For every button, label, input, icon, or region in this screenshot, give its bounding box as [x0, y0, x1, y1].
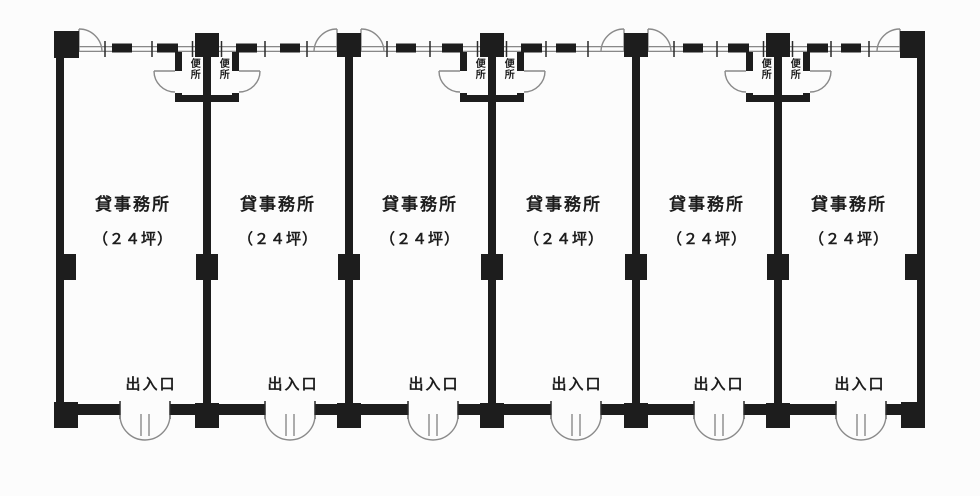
door-swing-arc-icon: [725, 71, 746, 92]
unit-1-top-door: [79, 29, 102, 52]
door-leaf: [286, 414, 294, 436]
unit-name: 貸事務所: [667, 190, 747, 215]
pillar: [196, 254, 218, 280]
divider-wall: [203, 52, 211, 404]
toilet-door-opening: [803, 71, 810, 93]
pillar: [56, 254, 76, 280]
floorplan-canvas: 貸事務所 （２４坪） 貸事務所 （２４坪） 貸事務所 （２４坪） 貸事務所 （２…: [0, 0, 980, 496]
pillar: [480, 33, 504, 57]
door-swing-arc-icon: [79, 29, 102, 52]
divider-wall: [774, 52, 782, 404]
toilet-door-opening: [746, 71, 753, 93]
entrance-label-4: 出入口: [551, 373, 602, 394]
unit-area: （２４坪）: [809, 228, 889, 249]
entrance-label-2: 出入口: [267, 373, 318, 394]
unit-4-top-door: [601, 29, 624, 52]
door-leaf: [429, 414, 437, 436]
door-swing-arc-icon: [361, 29, 384, 52]
unit-2-top-door: [314, 29, 337, 52]
pillar: [766, 33, 790, 57]
door-swing-arc-icon: [648, 29, 671, 52]
unit-3-top-door: [361, 29, 384, 52]
pillar: [54, 402, 78, 428]
unit-5-top-door: [648, 29, 671, 52]
divider-wall: [345, 52, 353, 404]
unit-area: （２４坪）: [93, 228, 173, 249]
door-leaf: [572, 414, 580, 436]
pillar: [195, 33, 219, 57]
pillar: [338, 254, 360, 280]
unit-6-top-door: [877, 29, 900, 52]
unit-label-5: 貸事務所 （２４坪）: [667, 190, 747, 249]
pillar: [337, 33, 361, 57]
toilet-label: 便所: [502, 58, 513, 80]
door-swing-arc-icon: [439, 71, 460, 92]
door-swing-arc-icon: [154, 71, 175, 92]
toilet-label: 便所: [788, 58, 799, 80]
pillar: [54, 31, 79, 58]
unit-area: （２４坪）: [524, 228, 604, 249]
door-swing-arc-icon: [314, 29, 337, 52]
pillar: [625, 254, 647, 280]
pillar: [900, 31, 925, 58]
pillar: [766, 403, 790, 428]
pillar: [337, 403, 361, 428]
entrance-label-5: 出入口: [693, 373, 744, 394]
unit-name: 貸事務所: [380, 190, 460, 215]
unit-label-3: 貸事務所 （２４坪）: [380, 190, 460, 249]
pillar: [901, 402, 925, 428]
pillar: [905, 254, 925, 280]
unit-name: 貸事務所: [524, 190, 604, 215]
toilet-door-opening: [232, 71, 239, 93]
unit-name: 貸事務所: [238, 190, 318, 215]
unit-name: 貸事務所: [809, 190, 889, 215]
unit-label-4: 貸事務所 （２４坪）: [524, 190, 604, 249]
entrance-label-1: 出入口: [125, 373, 176, 394]
unit-label-1: 貸事務所 （２４坪）: [93, 190, 173, 249]
toilet-door-opening: [460, 71, 467, 93]
unit-area: （２４坪）: [667, 228, 747, 249]
entrance-opening: [694, 403, 744, 416]
door-swing-arc-icon: [239, 71, 260, 92]
divider-wall: [488, 52, 496, 404]
door-leaf: [857, 414, 865, 436]
toilet-label: 便所: [217, 58, 228, 80]
pillar: [195, 403, 219, 428]
unit-area: （２４坪）: [380, 228, 460, 249]
entrance-opening: [120, 403, 170, 416]
pillar: [480, 403, 504, 428]
door-swing-arc-icon: [601, 29, 624, 52]
unit-label-6: 貸事務所 （２４坪）: [809, 190, 889, 249]
pillar: [481, 254, 503, 280]
toilet-door-opening: [517, 71, 524, 93]
door-swing-arc-icon: [524, 71, 545, 92]
right-wall: [917, 52, 925, 404]
door-leaf: [141, 414, 149, 436]
entrance-label-3: 出入口: [408, 373, 459, 394]
entrance-opening: [408, 403, 458, 416]
unit-label-2: 貸事務所 （２４坪）: [238, 190, 318, 249]
entrance-opening: [265, 403, 315, 416]
pillar: [767, 254, 789, 280]
entrance-opening: [551, 403, 601, 416]
toilet-label: 便所: [759, 58, 770, 80]
toilet-label: 便所: [473, 58, 484, 80]
divider-wall: [632, 52, 640, 404]
toilet-door-opening: [175, 71, 182, 93]
unit-area: （２４坪）: [238, 228, 318, 249]
entrance-label-6: 出入口: [834, 373, 885, 394]
left-wall: [56, 52, 64, 404]
door-leaf: [715, 414, 723, 436]
door-swing-arc-icon: [810, 71, 831, 92]
pillar: [624, 33, 648, 57]
door-swing-arc-icon: [877, 29, 900, 52]
pillar: [624, 403, 648, 428]
toilet-label: 便所: [188, 58, 199, 80]
unit-name: 貸事務所: [93, 190, 173, 215]
entrance-opening: [836, 403, 886, 416]
